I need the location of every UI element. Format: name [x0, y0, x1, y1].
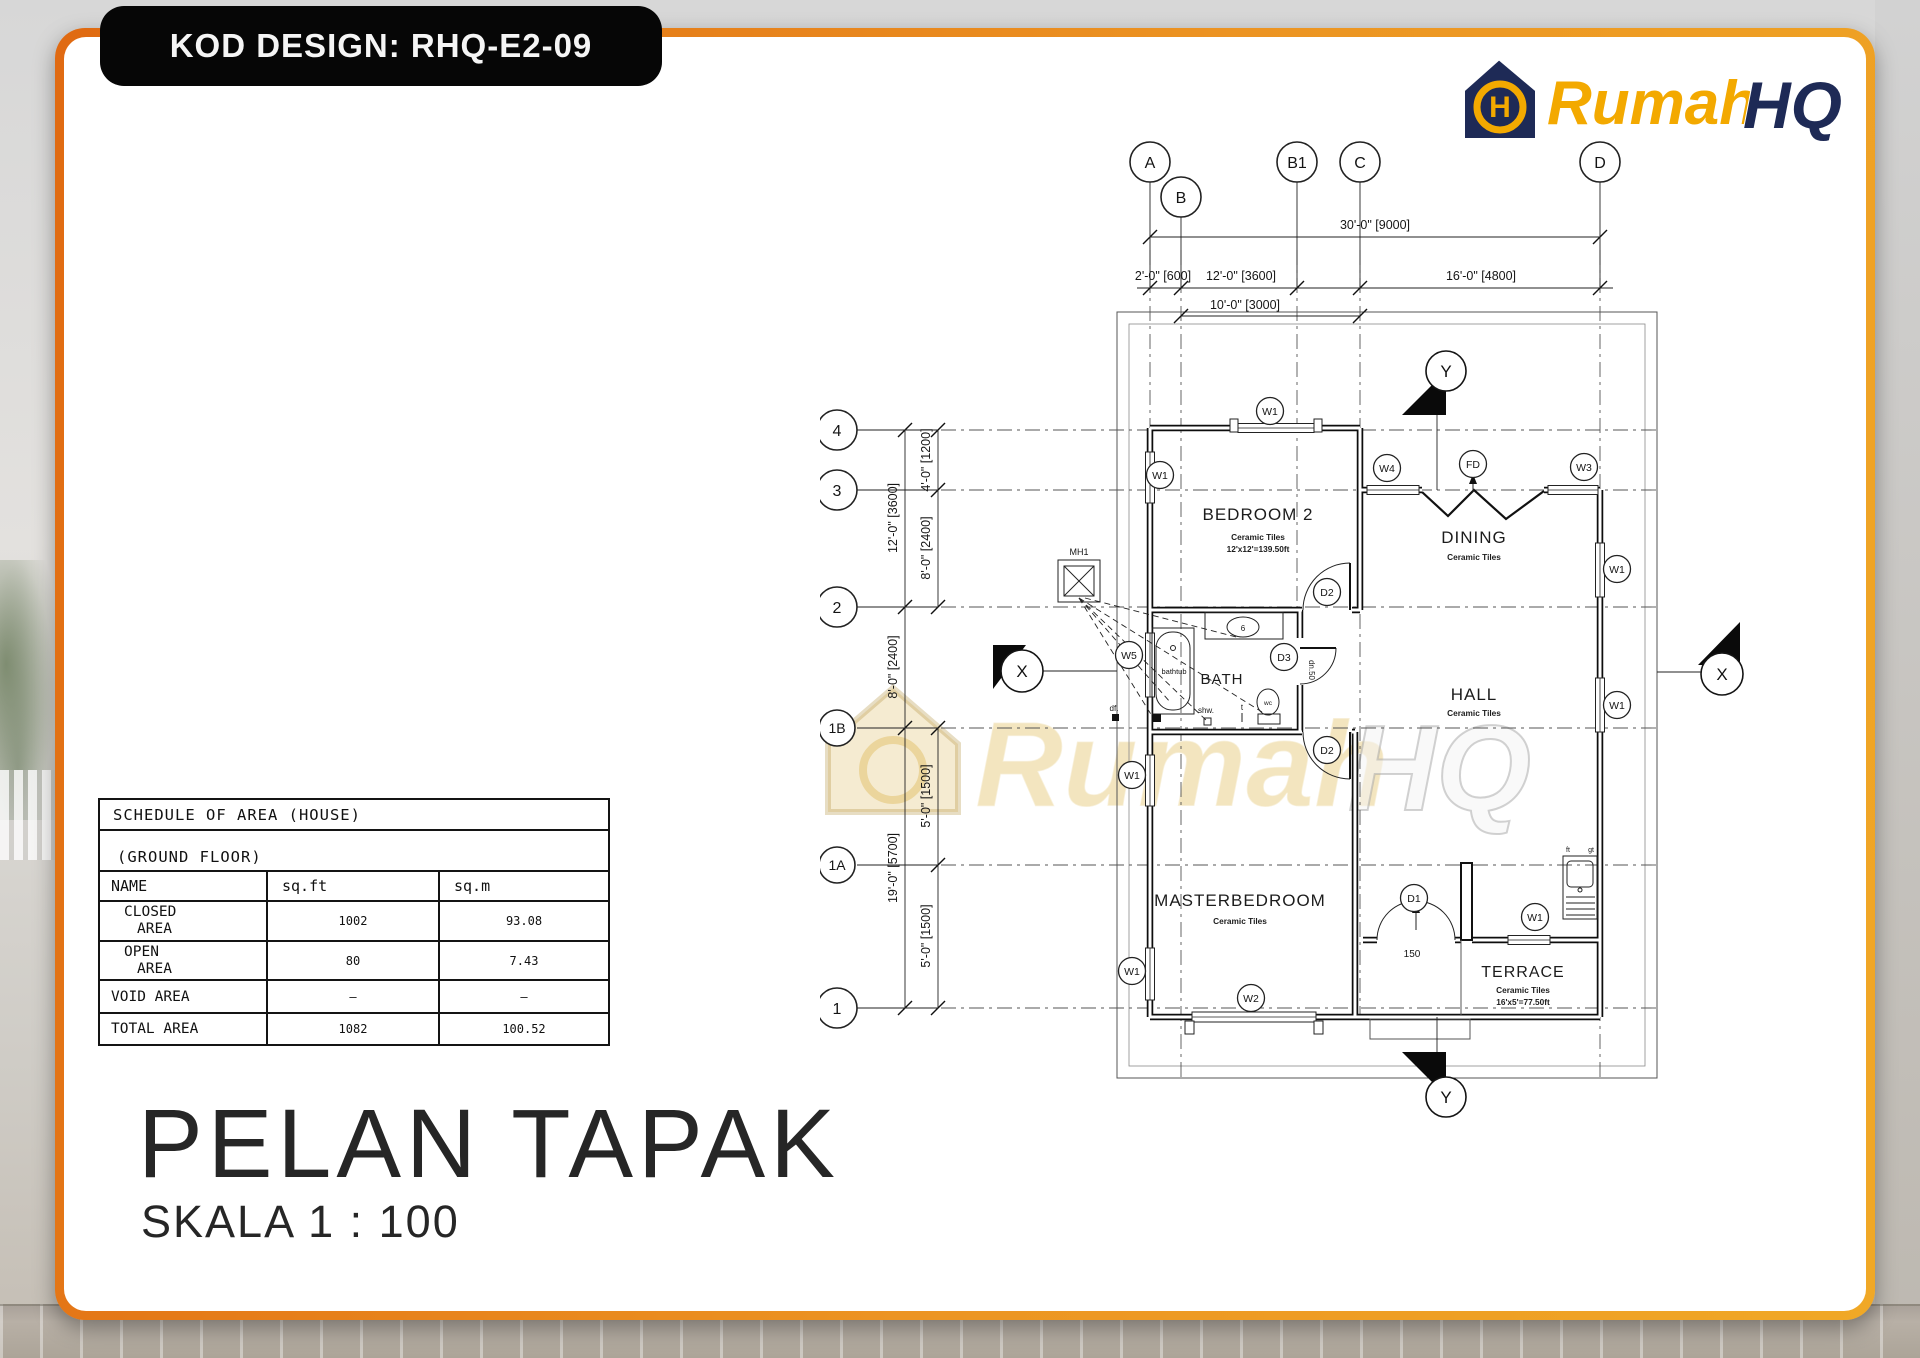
row-sqm: 100.52: [440, 1014, 608, 1044]
drawing-title: PELAN TAPAK: [138, 1088, 840, 1200]
grid-bubble-a: A: [1145, 155, 1156, 172]
dim-4-3: 4'-0" [1200]: [919, 428, 933, 491]
room-bedroom2: BEDROOM 2: [1202, 505, 1313, 524]
dim-b-c: 10'-0" [3000]: [1210, 298, 1280, 312]
bath-drain: [1153, 714, 1161, 722]
grid-bubble-b1: B1: [1287, 155, 1307, 172]
page: { "sheet": { "code_badge": "KOD DESIGN: …: [0, 0, 1920, 1358]
brand-logo: H Rumah HQ: [1455, 52, 1875, 153]
row-sqft: –: [268, 981, 440, 1012]
backdrop-right: [1875, 0, 1920, 1358]
dim-a-b: 2'-0" [600]: [1135, 269, 1191, 283]
house-icon-monogram: H: [1489, 91, 1511, 124]
tag-fd: FD: [1466, 459, 1480, 471]
grid-bubble-1b: 1B: [828, 720, 845, 736]
logo-word-rumah: Rumah: [1547, 69, 1757, 138]
tag-d1: D1: [1407, 893, 1421, 905]
grid-bubble-4: 4: [833, 423, 842, 440]
tag-w3: W3: [1576, 462, 1592, 474]
dim-3-2: 8'-0" [2400]: [919, 516, 933, 579]
manhole: MH1: [1058, 547, 1100, 602]
tag-w2: W2: [1243, 993, 1259, 1005]
wc-label: wc: [1263, 700, 1273, 707]
room-bedroom2-size: 12'x12'=139.50ft: [1227, 544, 1290, 554]
grid-bubble-c: C: [1354, 155, 1366, 172]
row-name2: AREA: [111, 921, 266, 938]
tag-w5: W5: [1121, 650, 1137, 662]
row-name2: AREA: [111, 961, 266, 978]
row-sqm: 93.08: [440, 902, 608, 940]
row-sqm: 7.43: [440, 942, 608, 979]
house-icon: H: [1463, 58, 1537, 140]
section-y-bottom: Y: [1440, 1088, 1451, 1107]
tag-w1: W1: [1527, 912, 1543, 924]
entrance-step: [1370, 1019, 1470, 1039]
watermark-house-icon: [828, 688, 958, 812]
section-y-top: Y: [1440, 362, 1451, 381]
row-sqft: 1082: [268, 1014, 440, 1044]
section-x-left: X: [1016, 662, 1027, 681]
tag-d2: D2: [1320, 745, 1334, 757]
folding-door-zigzag: [1422, 474, 1544, 519]
floor-trap-label: df.: [1110, 704, 1119, 713]
floor-trap: [1112, 714, 1119, 721]
dim-b-b1: 12'-0" [3600]: [1206, 269, 1276, 283]
tag-w1: W1: [1124, 770, 1140, 782]
tag-d3: D3: [1277, 652, 1291, 664]
row-name: OPEN: [111, 944, 266, 961]
grid-bubble-b: B: [1176, 190, 1187, 207]
gt-label: gt: [1588, 847, 1594, 854]
watermark: Rumah HQ: [828, 688, 1531, 836]
row-name: CLOSED: [111, 904, 266, 921]
tag-w1: W1: [1609, 564, 1625, 576]
table-header-row: NAME sq.ft sq.m: [100, 872, 608, 902]
brand-logo-svg: H Rumah HQ: [1455, 52, 1875, 148]
room-terrace-finish: Ceramic Tiles: [1496, 985, 1550, 995]
tag-w4: W4: [1379, 463, 1395, 475]
table-title: SCHEDULE OF AREA (HOUSE): [100, 800, 608, 831]
basin-number: 6: [1241, 624, 1246, 633]
grid-bubble-d: D: [1594, 155, 1606, 172]
col-header-sqft: sq.ft: [268, 872, 440, 900]
room-master-finish: Ceramic Tiles: [1213, 916, 1267, 926]
tag-w1: W1: [1124, 966, 1140, 978]
shower-label: shw.: [1198, 706, 1214, 715]
kitchen-sink: ft gt: [1563, 847, 1597, 919]
row-name: VOID AREA: [111, 989, 266, 1005]
table-subtitle: (GROUND FLOOR): [100, 831, 608, 872]
dim-2-1b: 8'-0" [2400]: [886, 635, 900, 698]
design-code-text: KOD DESIGN: RHQ-E2-09: [170, 27, 593, 65]
dim-4-2: 12'-0" [3600]: [886, 483, 900, 553]
room-master: MASTERBEDROOM: [1154, 891, 1326, 910]
row-sqft: 80: [268, 942, 440, 979]
dim-1a-1: 5'-0" [1500]: [919, 904, 933, 967]
grid-lines: [857, 250, 1660, 1078]
boundary-inner: [1129, 324, 1645, 1066]
room-hall-finish: Ceramic Tiles: [1447, 708, 1501, 718]
area-schedule-table: SCHEDULE OF AREA (HOUSE) (GROUND FLOOR) …: [98, 798, 610, 1046]
row-sqm: –: [440, 981, 608, 1012]
room-terrace-size: 16'x5'=77.50ft: [1496, 997, 1550, 1007]
dim-1b-1: 19'-0" [5700]: [886, 833, 900, 903]
logo-word-hq: HQ: [1743, 68, 1842, 142]
dim-1b-1a: 5'-0" [1500]: [919, 764, 933, 827]
tag-w1: W1: [1262, 406, 1278, 418]
bathtub-label: bathtub: [1161, 667, 1186, 676]
backdrop-fence: [0, 770, 58, 860]
tag-d2: D2: [1320, 587, 1334, 599]
room-dining: DINING: [1441, 528, 1507, 547]
down-label: dn.50: [1307, 660, 1316, 681]
drawing-scale: SKALA 1 : 100: [141, 1196, 460, 1248]
table-row: VOID AREA – –: [100, 981, 608, 1014]
room-dining-finish: Ceramic Tiles: [1447, 552, 1501, 562]
tag-w1: W1: [1609, 700, 1625, 712]
manhole-label: MH1: [1069, 547, 1088, 557]
grid-bubble-2: 2: [833, 600, 842, 617]
ft-label: ft: [1566, 847, 1570, 854]
room-hall: HALL: [1451, 685, 1498, 704]
col-header-sqm: sq.m: [440, 872, 608, 900]
table-row: TOTAL AREA 1082 100.52: [100, 1014, 608, 1044]
grid-bubble-1: 1: [833, 1001, 842, 1018]
dimensions-top: 30'-0" [9000] 2'-0" [600] 12'-0" [3600] …: [1135, 218, 1613, 323]
grid-bubble-3: 3: [833, 483, 842, 500]
grid-bubbles-top: A B B1 C D: [1130, 142, 1620, 288]
tag-w1: W1: [1152, 470, 1168, 482]
row-sqft: 1002: [268, 902, 440, 940]
dim-c-d: 16'-0" [4800]: [1446, 269, 1516, 283]
dim-total-width: 30'-0" [9000]: [1340, 218, 1410, 232]
table-row: CLOSED AREA 1002 93.08: [100, 902, 608, 942]
room-bath: BATH: [1201, 671, 1244, 688]
design-code-badge: KOD DESIGN: RHQ-E2-09: [100, 6, 662, 86]
col-header-name: NAME: [100, 872, 268, 900]
room-terrace: TERRACE: [1481, 964, 1564, 981]
wall-pier: [1461, 863, 1472, 940]
grid-bubble-1a: 1A: [828, 857, 846, 873]
section-x-right: X: [1716, 665, 1727, 684]
room-bedroom2-finish: Ceramic Tiles: [1231, 532, 1285, 542]
door-width-label: 150: [1404, 949, 1421, 960]
watermark-word-hq: HQ: [1348, 700, 1531, 836]
table-row: OPEN AREA 80 7.43: [100, 942, 608, 981]
floor-plan-drawing: Rumah HQ 30'-0" [9000] 2'-0" [600] 12'-0…: [820, 95, 1780, 1275]
row-name: TOTAL AREA: [111, 1021, 266, 1037]
